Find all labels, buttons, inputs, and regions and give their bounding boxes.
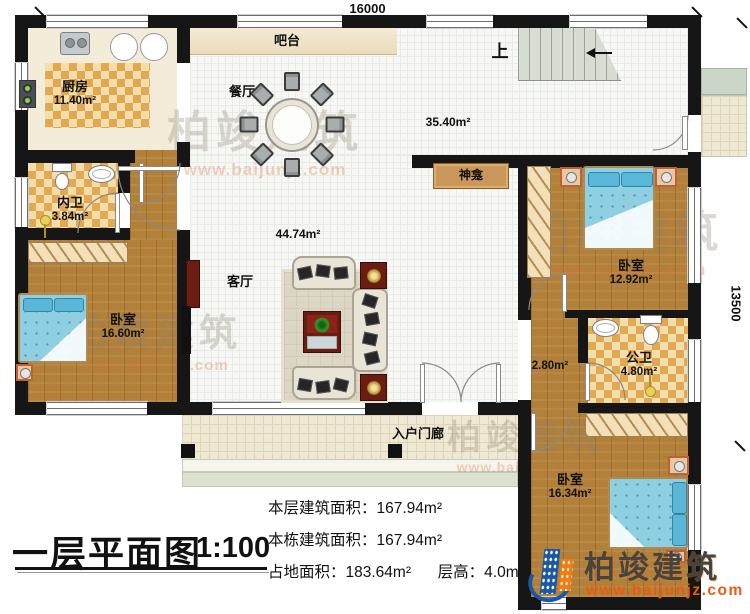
- window: [427, 15, 493, 28]
- stove-burner: [23, 84, 32, 93]
- side-table: [360, 262, 387, 289]
- drain-line: [44, 224, 46, 238]
- room-label-public-bath: 公卫4.80m²: [603, 351, 675, 379]
- window: [47, 402, 147, 415]
- dining-table-top: [272, 105, 312, 145]
- pillow: [588, 172, 620, 187]
- kitchen-sink-bowl: [65, 38, 75, 48]
- stats-floor-area-value: 167.94m²: [377, 500, 442, 517]
- dimension-top: 16000: [345, 1, 390, 16]
- living-area-label: 44.74m²: [263, 228, 333, 242]
- window: [688, 340, 701, 402]
- sofa-pillow: [362, 332, 378, 347]
- dining-chair: [326, 117, 345, 133]
- wardrobe: [28, 242, 128, 263]
- hall-strip-floor: [190, 155, 412, 168]
- stats-height-label: 层高：: [438, 564, 485, 581]
- door-arc: [529, 274, 565, 310]
- wardrobe: [527, 166, 551, 278]
- room-label-bedroom-bottom: 卧室16.34m²: [532, 473, 608, 501]
- dining-chair: [284, 72, 300, 91]
- room-label-bedroom-left: 卧室16.60m²: [83, 313, 163, 341]
- stairs-direction-line: [594, 52, 612, 54]
- sofa-pillow: [364, 312, 380, 326]
- stats-height-value: 4.0m: [484, 564, 518, 581]
- wall-segment: [148, 15, 238, 28]
- wall-segment: [647, 15, 701, 28]
- bed: [18, 293, 88, 363]
- room-label-inner-bath: 内卫3.84m²: [30, 196, 110, 224]
- pillow: [54, 298, 84, 312]
- bed: [583, 166, 655, 250]
- pillow: [23, 298, 53, 312]
- foyer-area-label: 35.40m²: [410, 116, 486, 130]
- wall-segment: [688, 28, 701, 115]
- stove-burner: [23, 96, 32, 105]
- window: [570, 15, 647, 28]
- porch-label: 入户门廊: [377, 427, 459, 442]
- washbasin: [592, 319, 619, 337]
- dining-chair: [284, 158, 300, 177]
- sofa-pillow: [333, 377, 349, 392]
- wall-segment: [688, 283, 701, 340]
- wall-segment: [15, 110, 28, 178]
- window: [238, 15, 342, 28]
- wall-segment: [565, 310, 688, 318]
- hallway-area-label: 2.80m²: [522, 360, 578, 373]
- stats-building-area: 本栋建筑面积：167.94m²: [268, 528, 442, 550]
- door-leaf: [682, 116, 688, 150]
- sofa-pillow: [364, 350, 380, 365]
- room-label-dining: 餐厅: [212, 85, 272, 100]
- nightstand: [655, 167, 677, 187]
- stats-land-area-label: 占地面积：: [268, 564, 346, 581]
- window: [213, 402, 365, 415]
- sofa: [352, 288, 388, 372]
- wall-segment: [342, 15, 427, 28]
- room-label-living: 客厅: [213, 275, 267, 290]
- side-table: [360, 374, 387, 401]
- floor-drain: [645, 386, 656, 397]
- sofa: [292, 366, 356, 400]
- side-porch-floor: [701, 95, 747, 157]
- wall-segment: [15, 402, 47, 415]
- wall-segment: [147, 402, 213, 415]
- table-lamp: [367, 269, 381, 283]
- stairs-up-label: 上: [488, 42, 512, 62]
- wall-segment: [177, 28, 190, 63]
- door-leaf: [562, 274, 567, 312]
- room-label-kitchen: 厨房11.40m²: [35, 80, 115, 108]
- stats-floor-area: 本层建筑面积：167.94m²: [268, 496, 442, 518]
- wall-segment: [493, 15, 570, 28]
- wall-segment: [365, 402, 422, 415]
- bed: [608, 477, 688, 549]
- shrine-label: 神龛: [433, 169, 509, 183]
- window: [15, 178, 28, 227]
- door-leaf: [585, 363, 590, 401]
- entry-door-leaf: [496, 364, 501, 403]
- stats-floor-area-label: 本层建筑面积：: [268, 500, 377, 517]
- room-label-bedroom-right: 卧室12.92m²: [593, 259, 669, 287]
- logo-url-text: www.baijunjz.com: [586, 582, 744, 600]
- toilet: [52, 163, 72, 172]
- tv-cabinet: [186, 260, 200, 308]
- logo-brand-text: 柏竣建筑: [584, 542, 720, 587]
- entry-door-arc: [422, 363, 461, 402]
- wardrobe: [585, 413, 688, 437]
- kitchen-plate: [110, 33, 138, 61]
- stairs-arrow-icon: [586, 48, 595, 58]
- toilet-bowl: [643, 325, 659, 345]
- wall-segment: [15, 150, 135, 163]
- sofa-pillow: [333, 266, 348, 279]
- logo-building-icon: [528, 546, 580, 604]
- table-lamp: [367, 381, 381, 395]
- dining-chair: [240, 117, 259, 133]
- porch-pillar: [388, 444, 402, 458]
- title-underline: [15, 567, 267, 570]
- porch-floor: [182, 415, 518, 459]
- pillow: [672, 482, 687, 514]
- brand-logo: 柏竣建筑 www.baijunjz.com: [528, 544, 746, 608]
- sofa-pillow: [297, 378, 313, 392]
- entry-door-leaf: [420, 364, 425, 403]
- nightstand: [16, 364, 33, 381]
- window: [47, 15, 148, 28]
- porch-pillar: [181, 444, 195, 458]
- wall-segment: [15, 15, 28, 63]
- kitchen-plate: [140, 33, 168, 61]
- stats-land-area: 占地面积：183.64m² 层高：4.0m: [268, 560, 519, 582]
- kitchen-sink-bowl: [77, 38, 87, 48]
- tv: [182, 306, 191, 354]
- stats-building-area-label: 本栋建筑面积：: [268, 532, 377, 549]
- wall-segment: [688, 402, 701, 485]
- window: [688, 485, 701, 550]
- coffee-table-glass: [307, 336, 337, 349]
- nightstand: [668, 456, 689, 475]
- washbasin: [88, 165, 115, 183]
- side-porch-step: [701, 68, 747, 95]
- room-label-bar: 吧台: [257, 34, 317, 49]
- dimension-tick: [734, 440, 745, 451]
- stats-building-area-value: 167.94m²: [377, 532, 442, 549]
- sofa-pillow: [297, 266, 313, 281]
- porch-step-2: [182, 472, 518, 487]
- wall-segment: [578, 403, 688, 413]
- sofa-pillow: [315, 264, 331, 278]
- sofa-pillow: [315, 380, 331, 394]
- toilet-bowl: [55, 173, 69, 190]
- door-arc: [533, 413, 570, 450]
- dimension-right: 13500: [729, 276, 744, 332]
- door-leaf: [531, 413, 536, 451]
- window: [688, 188, 701, 283]
- toilet: [640, 315, 662, 324]
- porch-step-1: [182, 459, 518, 472]
- door-leaf: [115, 193, 120, 233]
- title-scale: 1:100: [196, 532, 270, 565]
- sofa: [292, 256, 356, 290]
- door-leaf: [118, 166, 180, 171]
- plant: [314, 317, 330, 333]
- pillow: [621, 172, 653, 187]
- sofa-pillow: [361, 293, 378, 309]
- dimension-tick: [736, 17, 747, 28]
- wall-segment: [578, 318, 588, 363]
- door-arc: [118, 168, 180, 230]
- stats-land-area-value: 183.64m²: [346, 564, 411, 581]
- title-underline-thin: [17, 572, 269, 573]
- entry-door-arc: [461, 363, 500, 402]
- floor-plan: 柏竣建筑 www.baijunjz.com 柏竣建筑 www.baijunjz.…: [0, 0, 750, 614]
- nightstand: [560, 167, 582, 187]
